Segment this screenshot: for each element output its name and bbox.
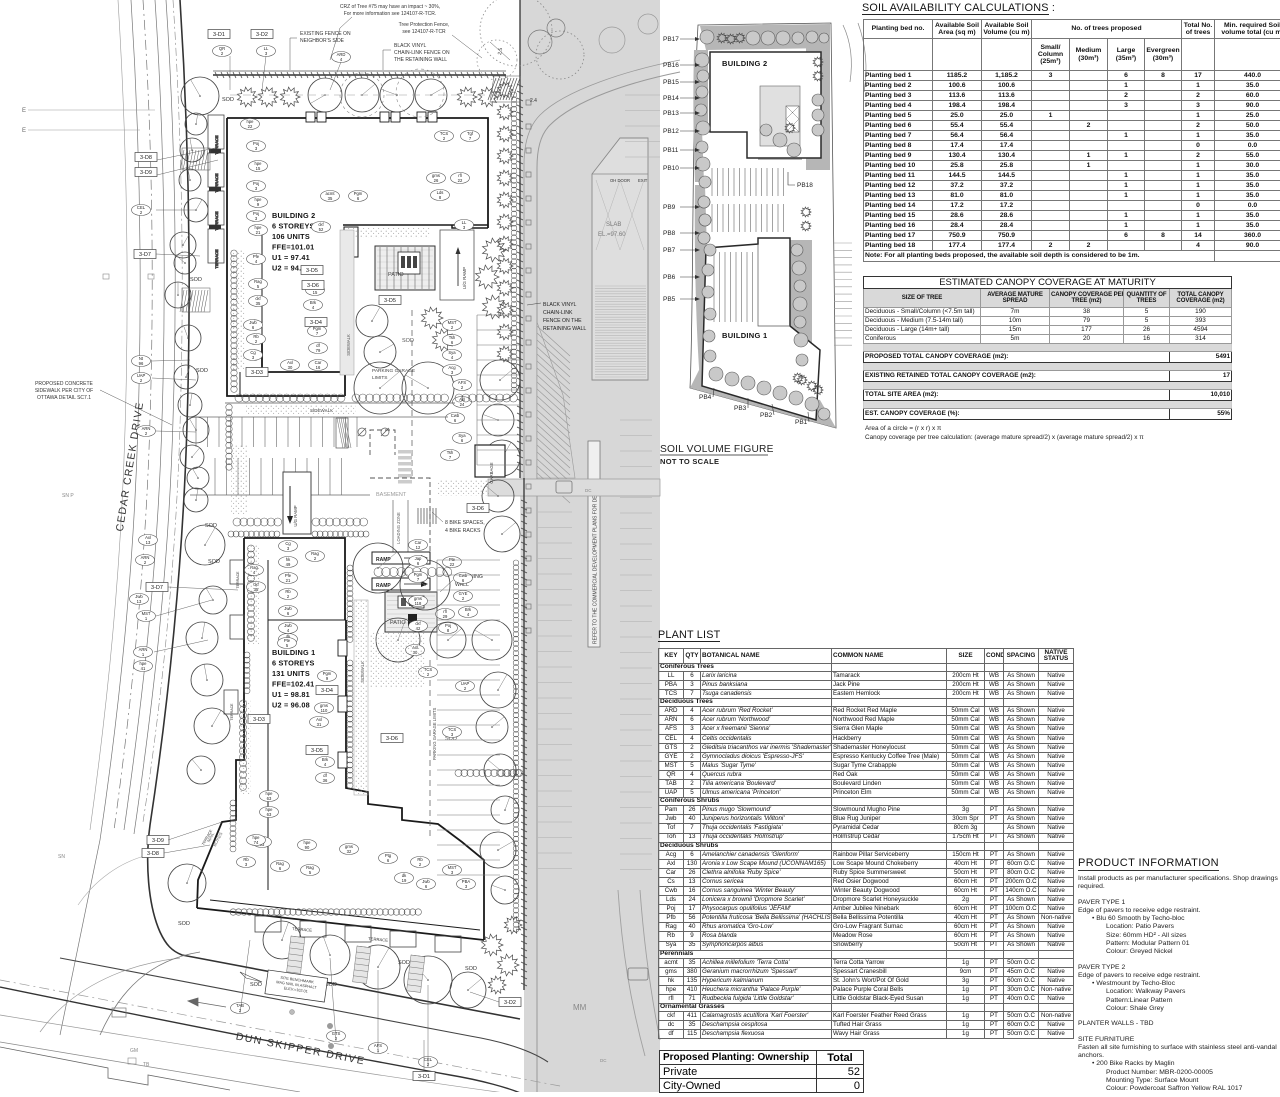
svg-text:21: 21 xyxy=(256,230,261,235)
svg-text:26: 26 xyxy=(434,178,439,183)
svg-text:U/G RAMP: U/G RAMP xyxy=(293,505,298,526)
svg-text:FFE=101.01: FFE=101.01 xyxy=(272,243,314,252)
svg-text:3-D4: 3-D4 xyxy=(321,688,333,694)
svg-text:15: 15 xyxy=(313,290,318,295)
svg-text:PB14: PB14 xyxy=(663,95,679,102)
svg-text:SOD: SOD xyxy=(250,982,262,988)
svg-text:DC: DC xyxy=(585,488,592,493)
svg-text:32: 32 xyxy=(347,849,352,854)
svg-text:MM: MM xyxy=(573,1003,587,1012)
svg-text:SIDEWALK: SIDEWALK xyxy=(360,661,365,683)
svg-text:BUILDING 1: BUILDING 1 xyxy=(272,648,315,657)
svg-text:SN P: SN P xyxy=(62,493,74,499)
svg-text:U1 = 97.41: U1 = 97.41 xyxy=(272,253,310,262)
svg-text:BUILDING 2: BUILDING 2 xyxy=(722,59,768,68)
svg-text:PROPOSED CONCRETE: PROPOSED CONCRETE xyxy=(35,381,93,387)
svg-text:21: 21 xyxy=(286,578,291,583)
svg-text:49: 49 xyxy=(286,562,291,567)
svg-text:110: 110 xyxy=(321,708,328,713)
svg-text:30: 30 xyxy=(288,365,293,370)
svg-text:3-D8: 3-D8 xyxy=(147,851,159,857)
svg-text:BLACK VINYL: BLACK VINYL xyxy=(543,302,577,308)
svg-text:SOD: SOD xyxy=(465,966,477,972)
svg-text:2.4: 2.4 xyxy=(530,98,537,104)
svg-text:FENCE ON THE: FENCE ON THE xyxy=(543,318,582,324)
svg-text:DUN SKIPPER DRIVE: DUN SKIPPER DRIVE xyxy=(235,1031,367,1068)
svg-text:NEIGHBOR'S SIDE: NEIGHBOR'S SIDE xyxy=(300,38,345,44)
svg-text:24: 24 xyxy=(460,402,465,407)
svg-text:EXIT: EXIT xyxy=(638,178,648,183)
svg-text:SN: SN xyxy=(58,854,65,860)
svg-text:PB8: PB8 xyxy=(663,230,676,237)
svg-text:For more information see 12410: For more information see 124107-R-TCR. xyxy=(344,11,437,17)
svg-text:63: 63 xyxy=(267,812,272,817)
svg-text:TERRACE: TERRACE xyxy=(230,703,234,721)
svg-text:SLAB: SLAB xyxy=(606,222,621,228)
svg-text:3-D3: 3-D3 xyxy=(253,717,265,723)
svg-text:8 BIKE SPACES,: 8 BIKE SPACES, xyxy=(445,520,485,526)
svg-text:PB7: PB7 xyxy=(663,247,676,254)
svg-text:3-D6: 3-D6 xyxy=(386,736,398,742)
svg-text:6 STOREYS: 6 STOREYS xyxy=(272,659,315,668)
svg-text:PB10: PB10 xyxy=(663,165,679,172)
svg-text:41: 41 xyxy=(141,666,146,671)
svg-text:3-D5: 3-D5 xyxy=(311,748,323,754)
svg-text:16: 16 xyxy=(316,365,321,370)
svg-text:3-D1: 3-D1 xyxy=(213,32,225,38)
svg-text:22: 22 xyxy=(458,178,463,183)
svg-text:BUILDING 1: BUILDING 1 xyxy=(722,331,768,340)
svg-text:SOD: SOD xyxy=(398,960,410,966)
svg-text:EL.=97.60: EL.=97.60 xyxy=(598,232,626,238)
svg-text:PB15: PB15 xyxy=(663,79,679,86)
svg-text:3-D9: 3-D9 xyxy=(152,838,164,844)
svg-text:35: 35 xyxy=(328,196,333,201)
svg-text:DC: DC xyxy=(600,1058,607,1063)
svg-text:OH DOOR: OH DOOR xyxy=(610,178,630,183)
svg-text:E: E xyxy=(22,108,26,114)
svg-text:3-D5: 3-D5 xyxy=(306,268,318,274)
svg-text:PB17: PB17 xyxy=(663,36,679,43)
svg-text:RAMP: RAMP xyxy=(376,557,391,563)
svg-text:TERRACE: TERRACE xyxy=(214,249,219,268)
svg-text:REFER TO THE COMMERCIAL DEVELO: REFER TO THE COMMERCIAL DEVELOPMENT PLAN… xyxy=(593,481,599,644)
svg-text:TERRACE: TERRACE xyxy=(292,926,313,933)
svg-text:PB11: PB11 xyxy=(663,147,679,154)
svg-text:35: 35 xyxy=(256,301,261,306)
svg-text:CHAIN-LINK: CHAIN-LINK xyxy=(543,310,573,316)
svg-text:4 BIKE RACKS: 4 BIKE RACKS xyxy=(445,528,481,534)
svg-text:LOADING ZONE: LOADING ZONE xyxy=(396,512,401,544)
svg-text:THE RETAINING WALL: THE RETAINING WALL xyxy=(394,57,447,63)
svg-text:RETAINING WALL: RETAINING WALL xyxy=(543,326,586,332)
svg-text:SOD: SOD xyxy=(190,277,202,283)
svg-text:BASEMENT: BASEMENT xyxy=(376,492,407,498)
svg-text:LIMITS: LIMITS xyxy=(372,375,387,381)
svg-text:Tree Protection Fence,: Tree Protection Fence, xyxy=(399,22,450,28)
svg-text:3-D1: 3-D1 xyxy=(418,1074,430,1080)
svg-text:3-D7: 3-D7 xyxy=(139,252,151,258)
svg-text:SOD: SOD xyxy=(196,368,208,374)
svg-text:79: 79 xyxy=(316,348,321,353)
svg-text:SOD: SOD xyxy=(178,921,190,927)
svg-text:CEDAR CREEK DRIVE: CEDAR CREEK DRIVE xyxy=(114,401,146,533)
svg-text:TERRACE: TERRACE xyxy=(236,571,240,589)
svg-text:12: 12 xyxy=(416,545,421,550)
svg-text:PB13: PB13 xyxy=(663,110,679,117)
svg-text:6 STOREYS: 6 STOREYS xyxy=(272,222,315,231)
svg-text:U2 = 96.08: U2 = 96.08 xyxy=(272,701,310,710)
svg-text:63: 63 xyxy=(267,796,272,801)
svg-text:90: 90 xyxy=(305,845,310,850)
svg-text:PB3: PB3 xyxy=(734,405,747,412)
svg-text:PATIO: PATIO xyxy=(388,272,404,278)
svg-text:3-D2: 3-D2 xyxy=(256,32,268,38)
svg-text:U/G RAMP: U/G RAMP xyxy=(462,267,467,289)
svg-text:3-D9: 3-D9 xyxy=(140,170,152,176)
svg-text:PARKING GARAGE LIMITS: PARKING GARAGE LIMITS xyxy=(432,708,437,760)
svg-text:TB: TB xyxy=(143,1062,150,1068)
svg-text:96: 96 xyxy=(139,361,144,366)
svg-text:PB6: PB6 xyxy=(663,274,676,281)
svg-text:13: 13 xyxy=(146,540,151,545)
svg-text:PB9: PB9 xyxy=(663,204,676,211)
svg-text:CHAIN-LINK FENCE ON: CHAIN-LINK FENCE ON xyxy=(394,50,450,56)
svg-text:22: 22 xyxy=(248,124,253,129)
svg-text:SOD: SOD xyxy=(208,559,220,565)
svg-text:52: 52 xyxy=(319,227,324,232)
svg-text:GARBAGE: GARBAGE xyxy=(489,462,494,483)
svg-text:PB5: PB5 xyxy=(663,296,676,303)
svg-text:PB1: PB1 xyxy=(795,419,808,426)
svg-text:SIDEWALK PER CITY OF: SIDEWALK PER CITY OF xyxy=(35,388,93,394)
svg-text:FFE=102.41: FFE=102.41 xyxy=(272,680,314,689)
svg-text:42: 42 xyxy=(416,626,421,631)
svg-text:SOIL VOLUME FIGURE: SOIL VOLUME FIGURE xyxy=(660,444,774,455)
svg-text:131 UNITS: 131 UNITS xyxy=(272,669,310,678)
svg-text:OTTAWA DETAIL SC7.1: OTTAWA DETAIL SC7.1 xyxy=(37,395,91,401)
svg-text:3-D6: 3-D6 xyxy=(472,506,484,512)
svg-text:106 UNITS: 106 UNITS xyxy=(272,232,310,241)
svg-text:CRZ of Tree #75 may have an im: CRZ of Tree #75 may have an impact ~ 30%… xyxy=(340,4,440,10)
svg-text:3-D7: 3-D7 xyxy=(151,585,163,591)
svg-text:3-D2: 3-D2 xyxy=(504,1000,516,1006)
svg-text:22: 22 xyxy=(450,562,455,567)
svg-text:PB18: PB18 xyxy=(797,182,813,189)
svg-text:E: E xyxy=(22,128,26,134)
svg-text:SIDEWALK: SIDEWALK xyxy=(346,334,351,356)
svg-text:74: 74 xyxy=(254,840,259,845)
svg-text:3-D4: 3-D4 xyxy=(310,320,322,326)
svg-text:PB16: PB16 xyxy=(663,62,679,69)
svg-text:29: 29 xyxy=(443,614,448,619)
svg-text:3-D5: 3-D5 xyxy=(384,298,396,304)
svg-text:19: 19 xyxy=(402,878,407,883)
svg-text:3-D8: 3-D8 xyxy=(140,155,152,161)
svg-text:NOT TO SCALE: NOT TO SCALE xyxy=(660,457,719,466)
svg-text:3-D6: 3-D6 xyxy=(307,283,319,289)
svg-text:13: 13 xyxy=(137,599,142,604)
svg-text:PB2: PB2 xyxy=(760,412,773,419)
svg-text:118: 118 xyxy=(415,601,422,606)
svg-text:15: 15 xyxy=(256,166,261,171)
svg-text:BLACK VINYL: BLACK VINYL xyxy=(394,43,426,49)
svg-text:SOD: SOD xyxy=(222,97,234,103)
svg-text:31: 31 xyxy=(317,722,322,727)
svg-text:see 124107-R-TCR: see 124107-R-TCR xyxy=(402,29,446,35)
svg-text:PB4: PB4 xyxy=(699,394,712,401)
svg-text:36: 36 xyxy=(323,778,328,783)
svg-text:GM: GM xyxy=(130,1048,138,1054)
svg-text:3-D3: 3-D3 xyxy=(251,370,263,376)
svg-text:RAMP: RAMP xyxy=(376,583,391,589)
svg-text:U1 = 98.81: U1 = 98.81 xyxy=(272,690,310,699)
svg-text:EXISTING FENCE ON: EXISTING FENCE ON xyxy=(300,31,351,37)
svg-text:PB12: PB12 xyxy=(663,128,679,135)
svg-text:BUILDING 2: BUILDING 2 xyxy=(272,211,315,220)
